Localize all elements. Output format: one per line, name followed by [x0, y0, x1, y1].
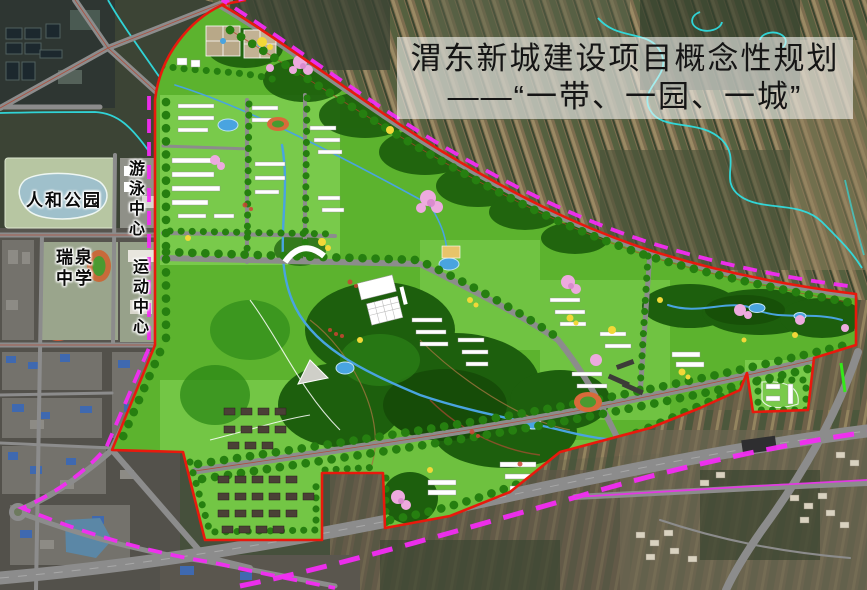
label-sports-center: 运动中心 — [126, 258, 150, 338]
plan-title: 渭东新城建设项目概念性规划 ——“一带、一园、一城” — [397, 37, 853, 119]
plan-title-line2: ——“一带、一园、一城” — [397, 78, 853, 116]
label-ruiquan-school: 瑞泉中学 — [54, 247, 96, 290]
label-renhe-park: 人和公园 — [26, 186, 102, 211]
plan-title-line1: 渭东新城建设项目概念性规划 — [397, 40, 853, 78]
label-swimming-center: 游泳中心 — [122, 160, 146, 240]
map-canvas: 渭东新城建设项目概念性规划 ——“一带、一园、一城” 人和公园 游泳中心 瑞泉中… — [0, 0, 867, 590]
